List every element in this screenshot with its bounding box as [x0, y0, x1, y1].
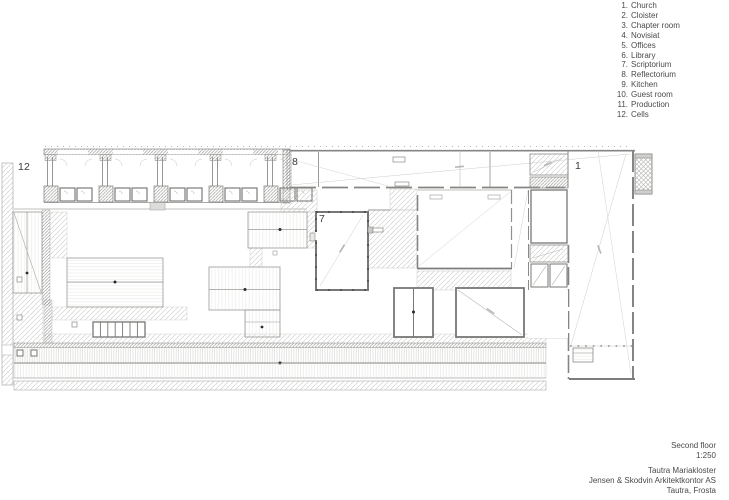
legend-item-number: 12.	[612, 110, 628, 120]
drawing-scale: 1:250	[589, 451, 716, 461]
terrace-bands	[14, 343, 546, 390]
legend-item: 6.Library	[612, 51, 722, 61]
legend-item-label: Guest room	[631, 90, 673, 100]
legend-item: 3.Chapter room	[612, 21, 722, 31]
project-name: Tautra Mariakloster	[589, 466, 716, 476]
plan-label-church: 1	[575, 160, 581, 172]
legend-item-number: 3.	[612, 21, 628, 31]
room-legend: 1.Church 2.Cloister 3.Chapter room 4.Nov…	[612, 1, 722, 120]
legend-item-number: 9.	[612, 80, 628, 90]
left-boundary-wall	[2, 163, 13, 385]
legend-item-number: 7.	[612, 60, 628, 70]
title-block: Second floor 1:250 Tautra Mariakloster J…	[589, 441, 716, 496]
legend-item-label: Scriptorium	[631, 60, 671, 70]
legend-item: 8.Reflectorium	[612, 70, 722, 80]
courtyard-room	[417, 190, 512, 269]
plan-label-cells: 12	[18, 161, 30, 173]
architect-name: Jensen & Skodvin Arkitektkontor AS	[589, 476, 716, 486]
legend-item-number: 8.	[612, 70, 628, 80]
legend-item-label: Offices	[631, 41, 656, 51]
legend-item-number: 5.	[612, 41, 628, 51]
legend-item-label: Chapter room	[631, 21, 680, 31]
cells-wing	[14, 147, 312, 211]
drawing-sheet: 12 8 7 1 1.Church 2.Cloister 3.Chapter r…	[0, 0, 729, 500]
legend-item-label: Cloister	[631, 11, 658, 21]
plan-label-scriptorium: 7	[319, 213, 325, 225]
legend-item: 2.Cloister	[612, 11, 722, 21]
legend-item-label: Library	[631, 51, 655, 61]
legend-item: 4.Novisiat	[612, 31, 722, 41]
floor-title: Second floor	[589, 441, 716, 451]
legend-item-label: Kitchen	[631, 80, 658, 90]
legend-item: 1.Church	[612, 1, 722, 11]
plan-label-reflectorium: 8	[292, 156, 298, 168]
legend-item-label: Production	[631, 100, 669, 110]
legend-item-number: 1.	[612, 1, 628, 11]
legend-item: 9.Kitchen	[612, 80, 722, 90]
legend-item-label: Reflectorium	[631, 70, 676, 80]
legend-item-label: Novisiat	[631, 31, 659, 41]
lower-rooms	[394, 288, 568, 338]
reflectorium-wing	[287, 147, 635, 191]
legend-item: 11.Production	[612, 100, 722, 110]
legend-item: 7.Scriptorium	[612, 60, 722, 70]
legend-item: 12.Cells	[612, 110, 722, 120]
legend-item-label: Cells	[631, 110, 649, 120]
legend-item-number: 11.	[612, 100, 628, 110]
legend-item-number: 10.	[612, 90, 628, 100]
project-location: Tautra, Frosta	[589, 486, 716, 496]
skylight-row	[93, 322, 145, 337]
legend-item-label: Church	[631, 1, 657, 11]
legend-item-number: 2.	[612, 11, 628, 21]
legend-item-number: 4.	[612, 31, 628, 41]
legend-item: 5.Offices	[612, 41, 722, 51]
legend-item-number: 6.	[612, 51, 628, 61]
legend-item: 10.Guest room	[612, 90, 722, 100]
